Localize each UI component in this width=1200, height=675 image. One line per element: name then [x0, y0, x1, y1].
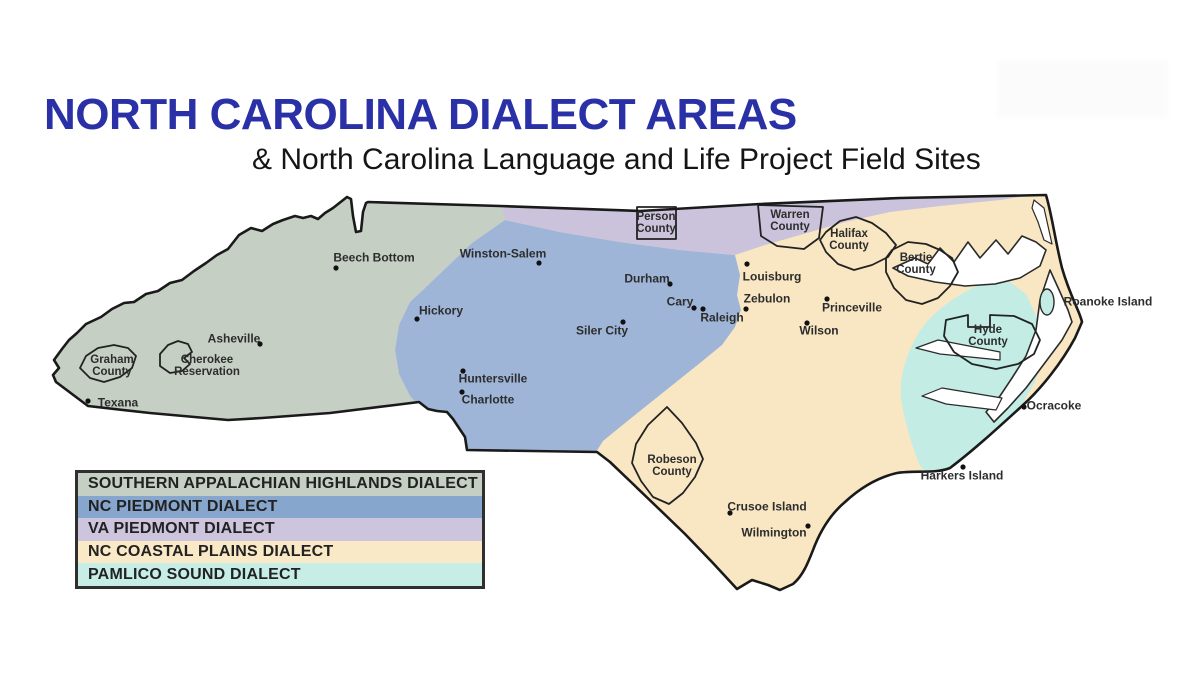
- legend-row-coastal-plains: NC COASTAL PLAINS DIALECT: [78, 541, 482, 564]
- label-graham-county: Graham County: [90, 354, 133, 378]
- label-robeson-county: Robeson County: [647, 454, 696, 478]
- label-ocracoke: Ocracoke: [1027, 400, 1082, 413]
- label-hickory: Hickory: [419, 305, 463, 318]
- label-person-county: Person County: [636, 211, 676, 235]
- legend-label-coastal-plains: NC COASTAL PLAINS DIALECT: [88, 543, 333, 561]
- dot-texana: [85, 398, 90, 403]
- roanoke-island-shape: [1040, 289, 1054, 315]
- nc-dialect-map-page: NORTH CAROLINA DIALECT AREAS & North Car…: [0, 0, 1200, 675]
- dot-zebulon: [743, 306, 748, 311]
- dot-louisburg: [744, 261, 749, 266]
- legend-label-nc-piedmont: NC PIEDMONT DIALECT: [88, 498, 278, 516]
- label-cary: Cary: [667, 296, 694, 309]
- legend-label-va-piedmont: VA PIEDMONT DIALECT: [88, 520, 275, 538]
- label-siler-city: Siler City: [576, 325, 628, 338]
- label-bertie-county: Bertie County: [896, 252, 936, 276]
- label-roanoke-island: Roanoke Island: [1064, 296, 1153, 309]
- label-warren-county: Warren County: [770, 209, 810, 233]
- label-wilmington: Wilmington: [741, 527, 806, 540]
- label-charlotte: Charlotte: [462, 394, 515, 407]
- label-harkers-island: Harkers Island: [921, 470, 1004, 483]
- legend-row-va-piedmont: VA PIEDMONT DIALECT: [78, 518, 482, 541]
- label-halifax-county: Halifax County: [829, 228, 869, 252]
- label-beech-bottom: Beech Bottom: [333, 252, 414, 265]
- legend-label-pamlico-sound: PAMLICO SOUND DIALECT: [88, 566, 301, 584]
- legend-row-pamlico-sound: PAMLICO SOUND DIALECT: [78, 563, 482, 586]
- label-huntersville: Huntersville: [459, 373, 528, 386]
- label-winston-salem: Winston-Salem: [460, 248, 547, 261]
- label-raleigh: Raleigh: [700, 312, 743, 325]
- legend-row-nc-piedmont: NC PIEDMONT DIALECT: [78, 496, 482, 519]
- legend-label-appalachian: SOUTHERN APPALACHIAN HIGHLANDS DIALECT: [88, 475, 478, 493]
- label-crusoe-island: Crusoe Island: [727, 501, 806, 514]
- label-louisburg: Louisburg: [743, 271, 802, 284]
- dot-beech-bottom: [333, 265, 338, 270]
- legend-row-appalachian: SOUTHERN APPALACHIAN HIGHLANDS DIALECT: [78, 473, 482, 496]
- label-durham: Durham: [624, 273, 669, 286]
- label-wilson: Wilson: [799, 325, 838, 338]
- label-cherokee-reservation: Cherokee Reservation: [174, 354, 240, 378]
- label-princeville: Princeville: [822, 302, 882, 315]
- label-hyde-county: Hyde County: [968, 324, 1008, 348]
- legend: SOUTHERN APPALACHIAN HIGHLANDS DIALECT N…: [75, 470, 485, 589]
- label-asheville: Asheville: [208, 333, 261, 346]
- label-zebulon: Zebulon: [744, 293, 791, 306]
- dot-winston-salem: [536, 260, 541, 265]
- label-texana: Texana: [98, 397, 138, 410]
